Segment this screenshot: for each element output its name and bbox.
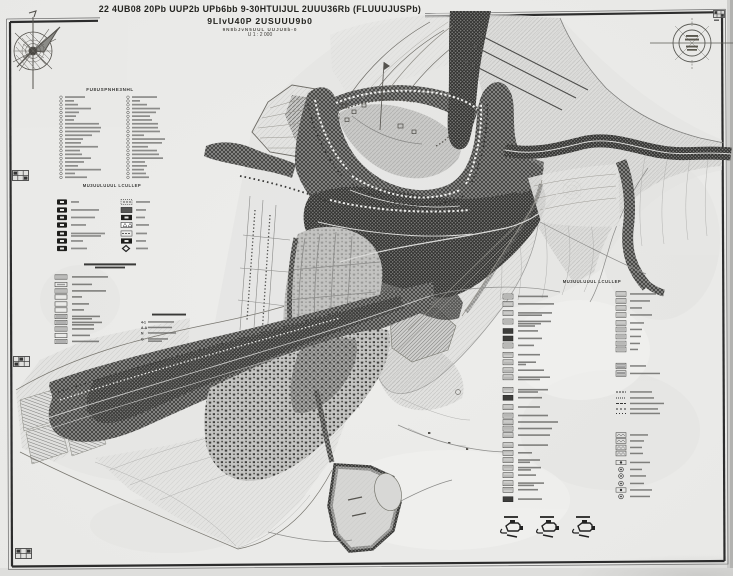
svg-text:FU8USPNHE3NHL: FU8USPNHE3NHL [86, 87, 134, 92]
svg-text:O: O [141, 337, 144, 341]
svg-text:MU3UULUUUL LCULLEP: MU3UULUUUL LCULLEP [563, 279, 621, 284]
svg-text:4-1: 4-1 [141, 320, 146, 324]
svg-text:MU3UULUUUL LCULLEP: MU3UULUUUL LCULLEP [83, 183, 141, 188]
svg-text:N: N [141, 331, 144, 335]
svg-text:A-A: A-A [141, 326, 148, 330]
